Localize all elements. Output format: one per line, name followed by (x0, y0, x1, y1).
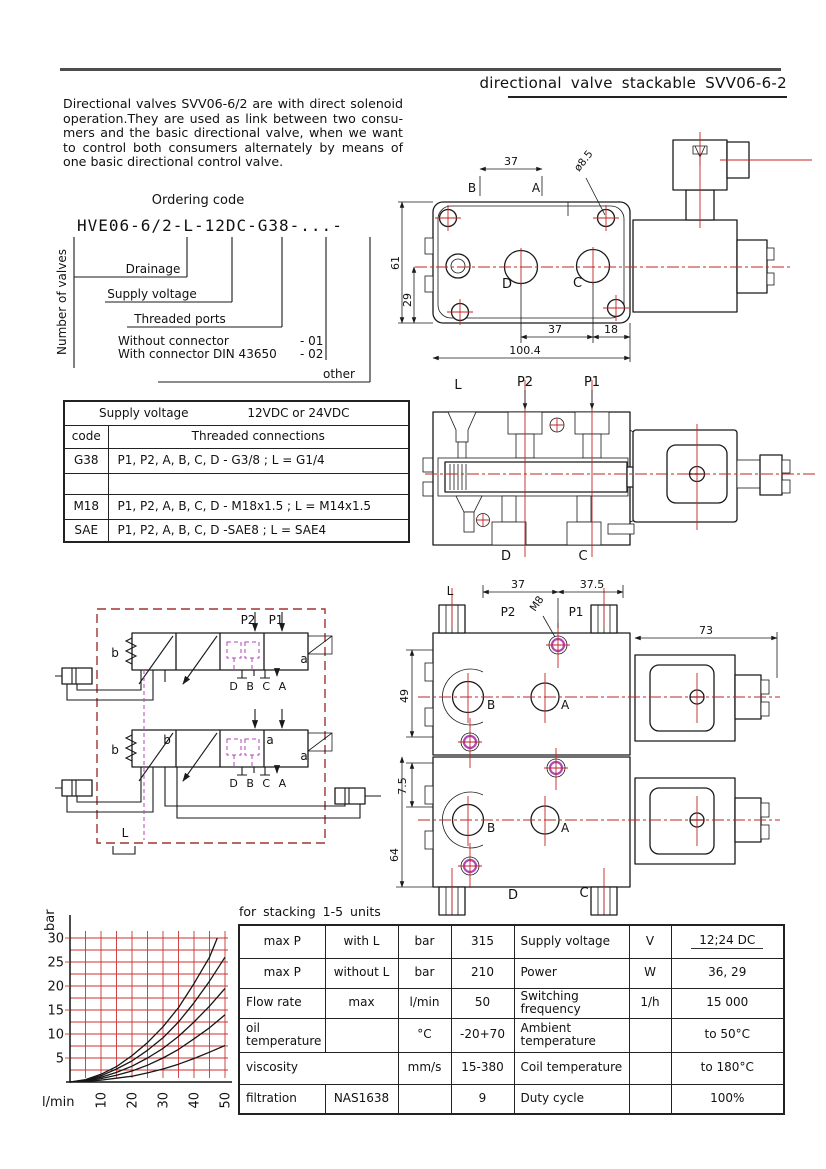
stack-bodies (425, 605, 630, 915)
p1-label: P1 (269, 613, 284, 627)
spec-cell: to 180°C (671, 1052, 784, 1084)
port-b-label: B (487, 821, 495, 835)
port-c-label: C (579, 886, 588, 901)
dim-7-5: 7.5 (396, 777, 409, 795)
spec-cell: max P (239, 958, 325, 988)
spec-cell: oil temperature (239, 1018, 325, 1052)
spec-cell: V (629, 925, 671, 958)
l-bracket (113, 846, 135, 854)
ports-label: D B C A (229, 680, 288, 693)
table1-col-code: code (64, 425, 108, 448)
spec-cell: Supply voltage (514, 925, 629, 958)
table1-cell: M18 (64, 494, 108, 519)
b-label: b (111, 743, 119, 757)
spec-cell (629, 1018, 671, 1052)
ports-label: D B C A (229, 777, 288, 790)
lower-valve (126, 709, 332, 781)
y-tick-label: 30 (47, 932, 64, 947)
dim-49: 49 (398, 689, 411, 703)
x-tick-label: 50 (219, 1092, 234, 1109)
intro-line: Directional valves SVV06-6/2 are with di… (63, 97, 403, 112)
port-c-label: C (578, 549, 587, 564)
upper-valve (126, 612, 332, 684)
spec-cell: bar (398, 958, 451, 988)
table1-cell (108, 473, 409, 494)
x-tick-label: 30 (157, 1092, 172, 1109)
spec-cell: bar (398, 925, 451, 958)
intro-line: one basic directional control valve. (63, 155, 403, 170)
dim-64: 64 (388, 848, 401, 862)
spec-cell: to 50°C (671, 1018, 784, 1052)
spec-cell: max P (239, 925, 325, 958)
table1-cell (64, 473, 108, 494)
p1-label: P1 (569, 605, 584, 619)
spec-value: 12;24 DC (691, 934, 763, 949)
dim-37-top: 37 (504, 155, 518, 168)
spec-cell: 100% (671, 1084, 784, 1114)
port-arrows (525, 390, 592, 409)
spec-cell: °C (398, 1018, 451, 1052)
spec-cell: 50 (451, 988, 514, 1018)
datasheet-page: directional valve stackable SVV06-6-2 Di… (0, 0, 826, 1169)
table1-cell: P1, P2, A, B, C, D - M18x1.5 ; L = M14x1… (108, 494, 409, 519)
spec-cell: 315 (451, 925, 514, 958)
table1-header: Supply voltage 12VDC or 24VDC (64, 401, 409, 425)
number-of-valves-label: Number of valves (55, 249, 69, 355)
stack-solenoids (635, 655, 769, 864)
port-a-label: A (532, 181, 541, 195)
section-solenoid (633, 430, 790, 522)
spec-cell: Coil temperature (514, 1052, 629, 1084)
dim-61: 61 (389, 256, 402, 270)
threaded-ports-label: Threaded ports (133, 312, 226, 326)
without-connector-label: Without connector (118, 334, 229, 348)
spec-cell: without L (325, 958, 398, 988)
port-d-label: D (501, 549, 511, 564)
hydraulic-schematic: P2 P1 b a D B C A b b a a D B C A L (55, 590, 395, 880)
stacking-note: for stacking 1-5 units (239, 904, 381, 919)
port-b-label: B (487, 698, 495, 712)
with-connector-label: With connector DIN 43650 (118, 347, 277, 361)
threaded-connections-table: Supply voltage 12VDC or 24VDC code Threa… (63, 400, 410, 543)
p2-label: P2 (501, 605, 516, 619)
ordering-title: Ordering code (152, 193, 245, 208)
dim-37-5: 37.5 (580, 578, 605, 591)
spec-cell: Duty cycle (514, 1084, 629, 1114)
dim-100-4: 100.4 (509, 344, 541, 357)
solenoid (633, 220, 737, 312)
intro-line: to control both consumers alternately by… (63, 141, 403, 156)
spec-cell: Switching frequency (514, 988, 629, 1018)
ordering-code: HVE06-6/2-L-12DC-G38-...- (77, 216, 343, 235)
spec-cell: NAS1638 (325, 1084, 398, 1114)
port-d-label: D (508, 888, 518, 903)
b-label: b (111, 646, 119, 660)
port-b-label: B (468, 181, 476, 195)
y-tick-label: 10 (47, 1028, 64, 1043)
supply-voltage-label: Supply voltage (107, 287, 197, 301)
spec-cell (629, 1052, 671, 1084)
spec-cell: max (325, 988, 398, 1018)
a-label: a (300, 749, 307, 763)
a-inner-label: a (266, 733, 273, 747)
dim-37-bottom: 37 (548, 323, 562, 336)
l-label: L (122, 826, 129, 840)
spec-cell (629, 1084, 671, 1114)
other-label: other (323, 367, 355, 381)
y-tick-label: 20 (47, 980, 64, 995)
spec-cell: Ambient temperature (514, 1018, 629, 1052)
spec-cell: 15-380 (451, 1052, 514, 1084)
spec-table: max P with L bar 315 Supply voltage V 12… (238, 924, 785, 1115)
table1-cell: P1, P2, A, B, C, D - G3/8 ; L = G1/4 (108, 448, 409, 473)
stacked-valves-drawing: L 37 37.5 P2 P1 M8 73 49 7.5 64 B A B A … (388, 568, 826, 923)
intro-line: operation.They are used as link between … (63, 112, 403, 127)
port-d-label: D (502, 277, 512, 292)
spec-cell: W (629, 958, 671, 988)
title-underline (508, 96, 787, 98)
intro-line: mers and the basic directional valve, wh… (63, 126, 403, 141)
port-a-label: A (561, 698, 570, 712)
intro-paragraph: Directional valves SVV06-6/2 are with di… (63, 97, 403, 170)
x-tick-label: 40 (188, 1092, 203, 1109)
spec-cell: 210 (451, 958, 514, 988)
p2-label: P2 (241, 613, 256, 627)
a-label: a (300, 652, 307, 666)
table1-cell: P1, P2, A, B, C, D -SAE8 ; L = SAE4 (108, 519, 409, 542)
x-tick-label: 20 (126, 1092, 141, 1109)
drainage-label: Drainage (126, 262, 181, 276)
y-tick-label: 15 (47, 1004, 64, 1019)
with-connector-code: - 02 (300, 347, 323, 361)
spec-cell: Flow rate (239, 988, 325, 1018)
page-title: directional valve stackable SVV06-6-2 (427, 74, 787, 92)
valve-top-view-drawing: 37 ø8.5 B A 61 29 D C 37 18 100.4 (390, 130, 826, 375)
spec-cell: 15 000 (671, 988, 784, 1018)
chart-grid (70, 931, 228, 1078)
valve-body (425, 140, 774, 323)
dim-18: 18 (604, 323, 618, 336)
l-label: L (447, 584, 454, 598)
supply-voltage-value: 12VDC or 24VDC (247, 406, 349, 420)
valve-section-drawing: L P2 P1 D C (420, 372, 820, 572)
port-l-label: L (454, 378, 462, 393)
port-a-label: A (561, 821, 570, 835)
table1-col-threaded: Threaded connections (108, 425, 409, 448)
supply-voltage-cell: Supply voltage (99, 406, 189, 420)
dim-37: 37 (511, 578, 525, 591)
top-rule (60, 68, 781, 71)
spec-cell: 1/h (629, 988, 671, 1018)
spec-cell: l/min (398, 988, 451, 1018)
b-inner-label: b (163, 733, 171, 747)
dim-73: 73 (699, 624, 713, 637)
port-p1-label: P1 (584, 375, 600, 390)
spec-cell: filtration (239, 1084, 325, 1114)
spec-cell: 9 (451, 1084, 514, 1114)
spec-cell: 36, 29 (671, 958, 784, 988)
m8-label: M8 (528, 594, 547, 614)
x-tick-label: 10 (95, 1092, 110, 1109)
spec-cell (325, 1018, 398, 1052)
spec-cell: -20+70 (451, 1018, 514, 1052)
table1-cell: G38 (64, 448, 108, 473)
spec-cell: 12;24 DC (671, 925, 784, 958)
spec-cell: with L (325, 925, 398, 958)
dim-dia-8-5: ø8.5 (572, 148, 596, 174)
y-tick-label: 25 (47, 956, 64, 971)
spec-cell: viscosity (239, 1052, 398, 1084)
spec-cell: mm/s (398, 1052, 451, 1084)
without-connector-code: - 01 (300, 334, 323, 348)
ordering-code-diagram: Ordering code HVE06-6/2-L-12DC-G38-...- … (55, 190, 395, 400)
spec-cell (398, 1084, 451, 1114)
port-p2-label: P2 (517, 375, 533, 390)
port-c-label: C (573, 276, 582, 291)
table1-cell: SAE (64, 519, 108, 542)
y-axis-label: bar (43, 909, 58, 931)
flow-chart: 510152025301020304050 bar l/min (38, 895, 243, 1135)
spec-cell: Power (514, 958, 629, 988)
x-axis-label: l/min (42, 1095, 75, 1110)
dim-29: 29 (401, 293, 414, 307)
y-tick-label: 5 (56, 1052, 64, 1067)
